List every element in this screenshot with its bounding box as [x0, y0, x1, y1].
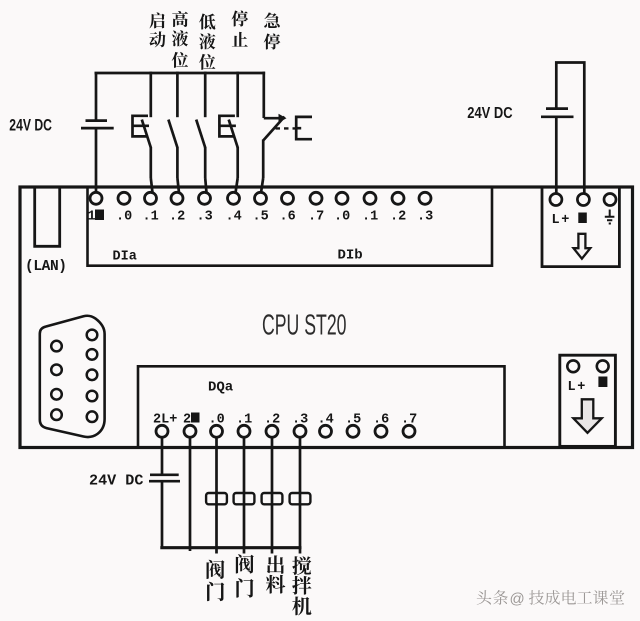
- svg-text:.6: .6: [280, 210, 296, 225]
- svg-text:.7: .7: [308, 210, 324, 225]
- svg-text:DIa: DIa: [113, 250, 137, 265]
- svg-text:.1: .1: [236, 413, 252, 428]
- svg-text:2L+: 2L+: [153, 413, 177, 428]
- svg-text:24V DC: 24V DC: [9, 117, 52, 135]
- svg-text:.6: .6: [373, 413, 389, 428]
- svg-text:.1: .1: [362, 210, 378, 225]
- svg-text:.3: .3: [197, 210, 213, 225]
- svg-text:2: 2: [183, 413, 191, 428]
- svg-text:.5: .5: [345, 413, 361, 428]
- svg-text:.5: .5: [253, 210, 269, 225]
- svg-text:.3: .3: [417, 210, 433, 225]
- svg-text:.4: .4: [226, 210, 242, 225]
- svg-text:.2: .2: [264, 413, 280, 428]
- svg-text:(LAN): (LAN): [25, 259, 67, 275]
- svg-text:CPU ST20: CPU ST20: [262, 310, 347, 342]
- svg-text:.4: .4: [318, 413, 334, 428]
- svg-text:.0: .0: [116, 210, 132, 225]
- svg-text:1: 1: [88, 210, 96, 225]
- svg-text:@: @: [510, 591, 525, 608]
- svg-text:24V DC: 24V DC: [467, 105, 513, 122]
- svg-text:DQa: DQa: [208, 380, 234, 396]
- svg-text:.1: .1: [143, 210, 159, 225]
- svg-text:.2: .2: [390, 210, 406, 225]
- svg-text:.0: .0: [209, 413, 225, 428]
- svg-text:24V DC: 24V DC: [89, 473, 143, 490]
- svg-text:.7: .7: [401, 413, 417, 428]
- svg-text:L+: L+: [552, 213, 570, 228]
- svg-text:.3: .3: [292, 413, 308, 428]
- svg-text:.0: .0: [334, 210, 350, 225]
- svg-text:.2: .2: [169, 210, 185, 225]
- svg-text:DIb: DIb: [338, 248, 363, 264]
- svg-text:L+: L+: [568, 380, 586, 395]
